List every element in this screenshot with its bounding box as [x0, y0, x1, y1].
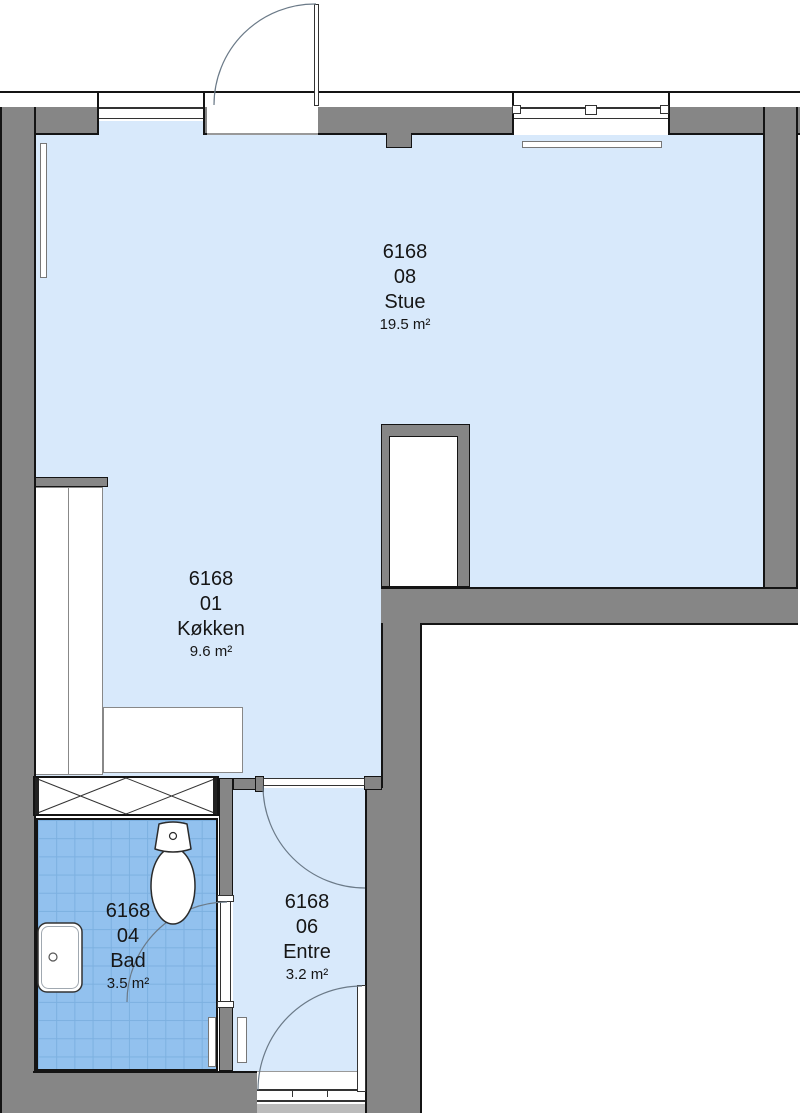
room-unit: 6168	[177, 567, 245, 592]
room-unit: 6168	[106, 899, 151, 924]
wall-right-outer-line	[796, 107, 798, 625]
radiator-stue-left	[40, 143, 47, 278]
window-right-end-cap-right	[660, 105, 669, 114]
front-door-sill-line2	[257, 1100, 365, 1102]
bad-door-jamb-bottom	[217, 1001, 234, 1008]
entry-door-threshold	[207, 133, 318, 135]
wall-left	[0, 107, 36, 1113]
wall-bottom	[33, 1071, 257, 1113]
room-label-bad: 6168 04 Bad 3.5 m²	[106, 899, 151, 993]
room-name: Entre	[283, 940, 331, 965]
front-door-sill-tick1	[292, 1090, 293, 1097]
window-left-frame-line	[99, 107, 203, 109]
window-right-frame-line2	[514, 118, 668, 119]
window-right-end-cap-left	[512, 105, 521, 114]
room-unit: 6168	[283, 890, 331, 915]
kitchen-wall-stub	[33, 477, 108, 487]
room-unit: 6168	[380, 240, 431, 265]
wall-right	[763, 107, 796, 589]
room-area: 19.5 m²	[380, 315, 431, 334]
front-door-sill-line1	[257, 1089, 365, 1091]
wall-bad-entre-lower	[219, 1002, 233, 1071]
wall-stue-bottom	[381, 587, 798, 625]
window-left-recess	[99, 121, 203, 135]
entry-door-swing-arc	[214, 4, 316, 105]
wall-bad-entre-upper	[219, 778, 233, 901]
room-name: Bad	[106, 949, 151, 974]
room-number: 01	[177, 592, 245, 617]
room-name: Køkken	[177, 617, 245, 642]
bad-door-leaf	[220, 901, 231, 1002]
window-left-frame-line2	[99, 118, 203, 119]
wall-lower-right-lower	[365, 788, 422, 1113]
bad-door-jamb-top	[217, 895, 234, 902]
room-name: Stue	[380, 290, 431, 315]
wall-top-notch	[386, 133, 412, 148]
window-right-mullion	[585, 105, 597, 115]
radiator-bad	[208, 1017, 216, 1067]
room-area: 3.2 m²	[283, 965, 331, 984]
wall-lower-right-upper	[381, 623, 422, 788]
front-door-sill-tick2	[327, 1090, 328, 1097]
floor-plan: 6168 08 Stue 19.5 m² 6168 01 Køkken 9.6 …	[0, 0, 800, 1113]
entre-door-leaf	[263, 778, 365, 786]
radiator-stue-top	[522, 141, 662, 148]
entry-door-opening	[207, 93, 318, 135]
front-door-line-inner	[257, 1071, 365, 1072]
room-area: 9.6 m²	[177, 642, 245, 661]
room-number: 08	[380, 265, 431, 290]
room-number: 06	[283, 915, 331, 940]
room-area: 3.5 m²	[106, 974, 151, 993]
shaft	[389, 436, 458, 587]
ventilation-hatch	[33, 776, 219, 816]
room-number: 04	[106, 924, 151, 949]
entre-door-jamb-right	[364, 776, 382, 790]
room-label-stue: 6168 08 Stue 19.5 m²	[380, 240, 431, 334]
kitchen-counter-divider	[68, 488, 69, 774]
room-label-kokken: 6168 01 Køkken 9.6 m²	[177, 567, 245, 661]
front-door-leaf	[357, 985, 366, 1092]
entry-door-leaf	[314, 4, 319, 106]
kitchen-counter-bottom	[103, 707, 243, 773]
room-label-entre: 6168 06 Entre 3.2 m²	[283, 890, 331, 984]
front-door-outer-sill	[257, 1104, 365, 1113]
radiator-entre	[237, 1017, 247, 1063]
